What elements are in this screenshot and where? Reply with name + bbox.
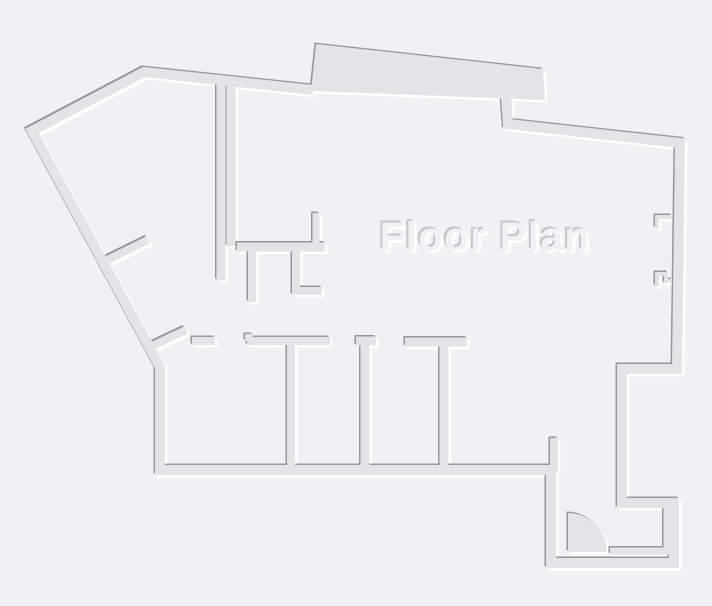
- floor-plan-drawing: Floor Plan: [0, 0, 712, 606]
- plan-title: Floor Plan: [380, 215, 591, 259]
